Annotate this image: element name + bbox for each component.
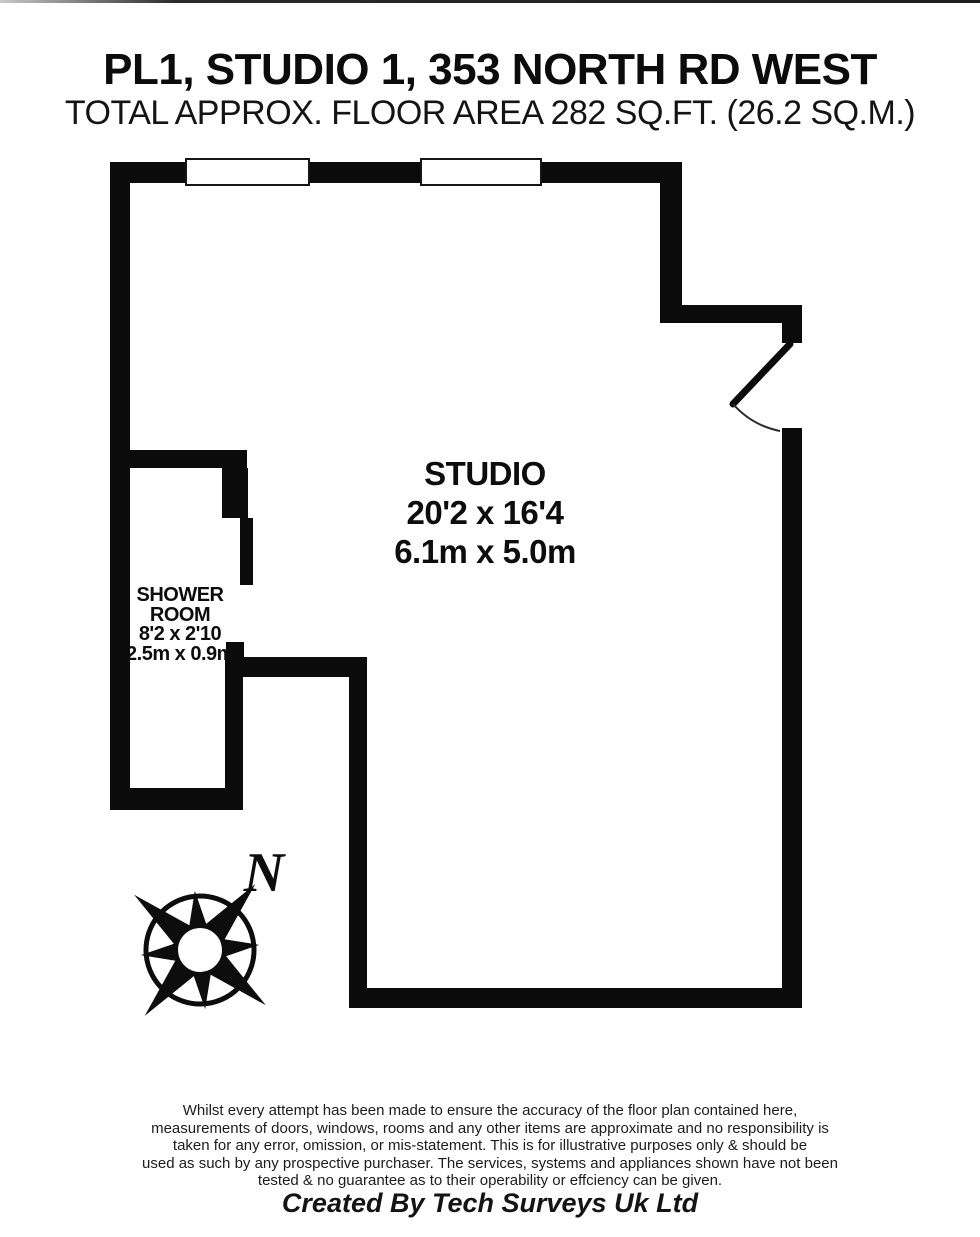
disclaimer-line: measurements of doors, windows, rooms an…: [0, 1120, 980, 1138]
entrance-door-icon: [700, 290, 820, 450]
window-2-icon: [420, 158, 542, 186]
disclaimer-line: used as such by any prospective purchase…: [0, 1155, 980, 1173]
room-size-imperial: 8'2 x 2'10: [106, 625, 254, 645]
wall-shower-bottom: [110, 788, 243, 810]
room-name-line1: SHOWER: [106, 586, 254, 606]
disclaimer-text: Whilst every attempt has been made to en…: [0, 1102, 980, 1190]
disclaimer-line: Whilst every attempt has been made to en…: [0, 1102, 980, 1120]
compass-rose-icon: N: [105, 825, 295, 1035]
room-name: STUDIO: [335, 454, 635, 493]
disclaimer-line: tested & no guarantee as to their operab…: [0, 1172, 980, 1190]
compass-north-label: N: [243, 842, 287, 904]
wall-bottom: [349, 988, 802, 1008]
floor-plan: STUDIO 20'2 x 16'4 6.1m x 5.0m SHOWER RO…: [0, 0, 980, 1050]
room-label-shower-room: SHOWER ROOM 8'2 x 2'10 2.5m x 0.9m: [106, 586, 254, 664]
room-size-imperial: 20'2 x 16'4: [335, 493, 635, 532]
wall-right: [782, 428, 802, 1008]
room-size-metric: 6.1m x 5.0m: [335, 532, 635, 571]
wall-upper-right-vertical: [660, 162, 682, 323]
wall-shower-jamb-wide: [222, 468, 248, 518]
wall-left: [110, 162, 130, 810]
room-label-studio: STUDIO 20'2 x 16'4 6.1m x 5.0m: [335, 454, 635, 571]
window-1-icon: [185, 158, 310, 186]
wall-lower-left-vertical: [349, 657, 367, 1008]
disclaimer-line: taken for any error, omission, or mis-st…: [0, 1137, 980, 1155]
wall-shower-top: [110, 450, 247, 468]
room-size-metric: 2.5m x 0.9m: [106, 645, 254, 665]
wall-shower-jamb-thin: [240, 518, 253, 585]
floorplan-page: PL1, STUDIO 1, 353 NORTH RD WEST TOTAL A…: [0, 0, 980, 1237]
credit-line: Created By Tech Surveys Uk Ltd: [0, 1188, 980, 1218]
